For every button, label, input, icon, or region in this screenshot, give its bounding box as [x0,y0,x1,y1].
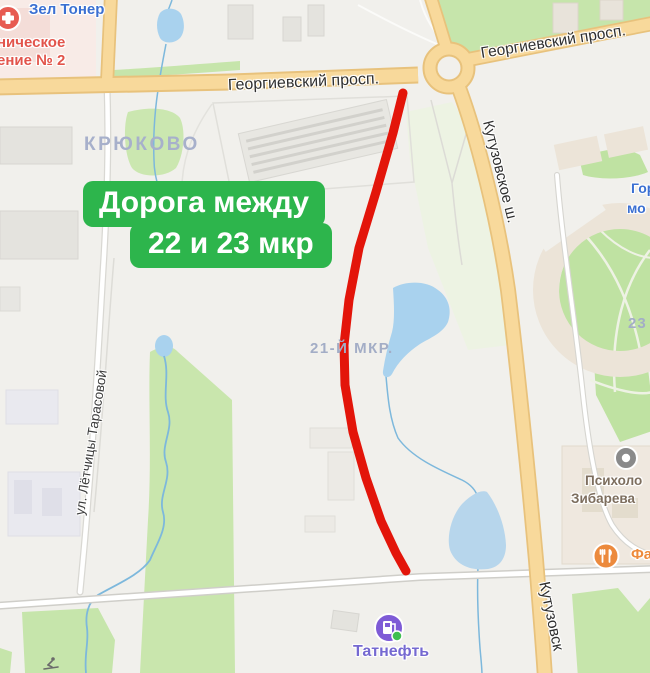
map-canvas[interactable]: Георгиевский просп. Георгиевский просп. … [0,0,650,673]
poi-label-clinic-line1[interactable]: ническое [0,35,65,51]
route-callout-line2: 22 и 23 мкр [130,223,332,268]
poi-label-gorod-line2[interactable]: мо [627,201,646,216]
district-label-mkr21: 21-Й МКР. [310,341,394,357]
poi-label-psych-line2[interactable]: Зибарева [571,492,635,506]
route-callout: Дорога между 22 и 23 мкр [83,181,332,268]
poi-label-tatneft[interactable]: Татнефть [353,644,429,661]
district-label-mkr23: 23 [628,316,647,332]
poi-label-gorod-line1[interactable]: Гор [631,181,650,196]
district-label-kryukovo: КРЮКОВО [84,135,200,155]
poi-label-psych-line1[interactable]: Психоло [585,474,642,488]
pond-small [155,335,173,357]
route-callout-line1: Дорога между [83,181,325,227]
poi-label-zel-toner[interactable]: Зел Тонер [29,2,104,18]
base-map [0,0,650,673]
poi-label-clinic-line2[interactable]: ение № 2 [0,53,65,69]
poi-label-cafe[interactable]: Фа [631,547,650,563]
